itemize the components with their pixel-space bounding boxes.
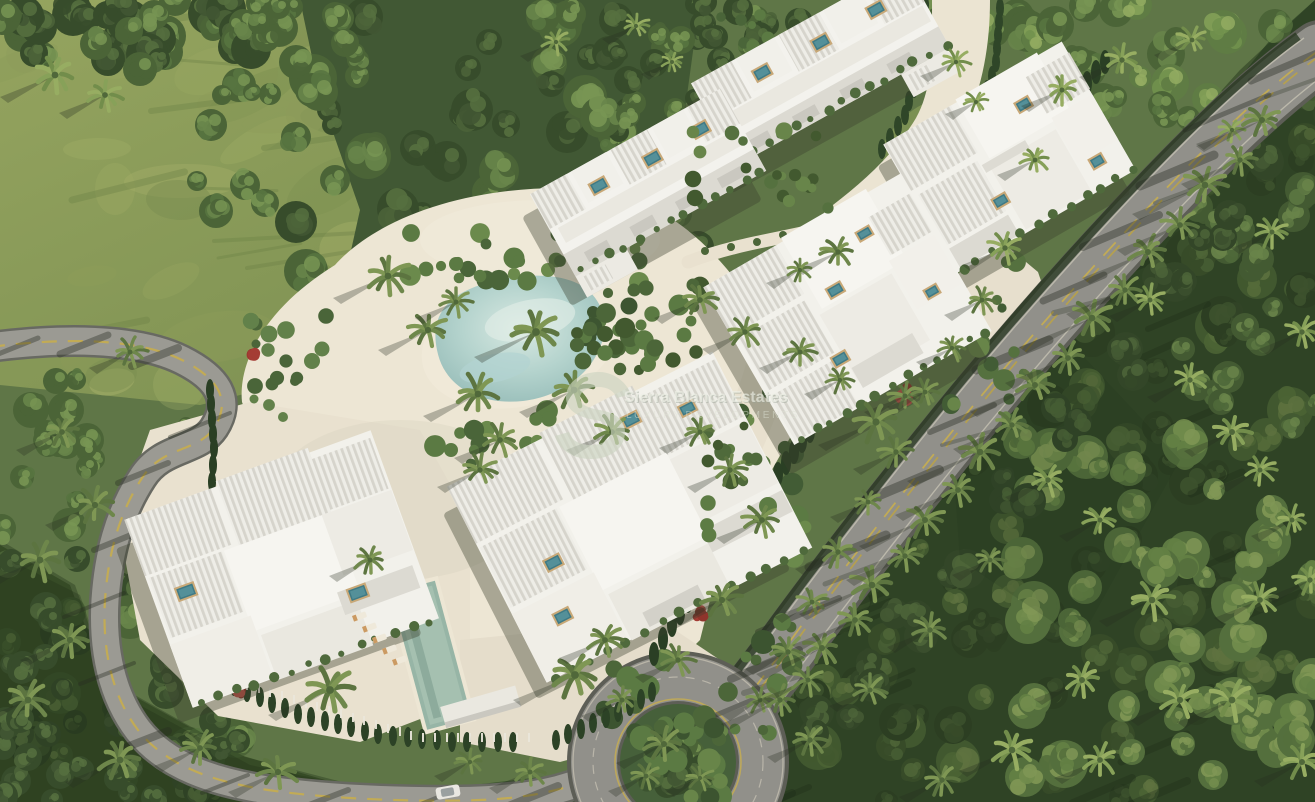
svg-text:Sierra Blanca Estates: Sierra Blanca Estates <box>624 389 788 406</box>
svg-text:L U X U R Y D E V E L O P M E: L U X U R Y D E V E L O P M E N T S <box>626 410 798 421</box>
